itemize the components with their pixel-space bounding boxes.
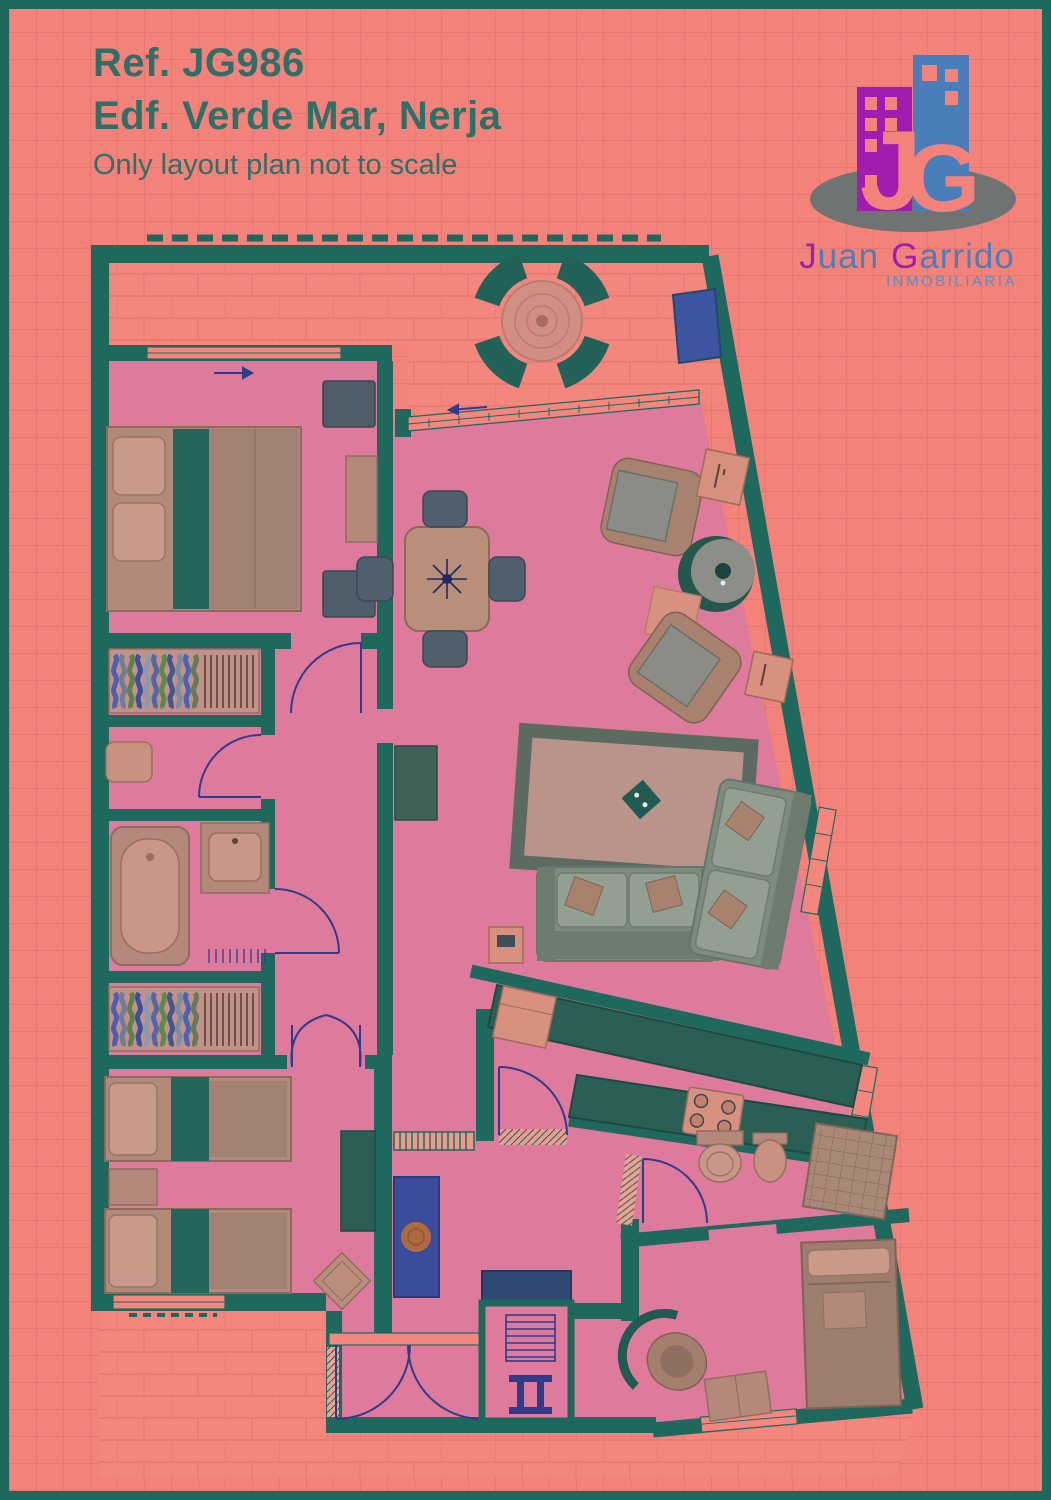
dining-chair: [423, 491, 467, 527]
hall-rug: [394, 1177, 439, 1297]
nightstand: [109, 1169, 157, 1205]
floor-plan: [9, 9, 1051, 1500]
tv-unit: [395, 746, 437, 820]
dresser: [106, 742, 152, 782]
bidet-icon: [753, 1133, 787, 1182]
shoe-rack: [394, 1132, 474, 1150]
side-table: [696, 449, 749, 505]
fridge-icon: [493, 986, 557, 1048]
sideboard: [704, 1371, 771, 1421]
toilet-icon: [697, 1131, 743, 1182]
dresser: [346, 456, 377, 542]
entry-threshold: [329, 1333, 493, 1345]
twin-bed: [105, 1077, 291, 1161]
side-table: [489, 927, 523, 963]
dining-chair: [357, 557, 393, 601]
dressing-room: [106, 742, 152, 782]
elevator-core: [482, 1271, 571, 1421]
flyer-page: Ref. JG986 Edf. Verde Mar, Nerja Only la…: [0, 0, 1051, 1500]
twin-bed: [105, 1209, 291, 1293]
shower-icon: [803, 1123, 897, 1219]
nightstand: [323, 381, 375, 427]
dining-chair: [489, 557, 525, 601]
wardrobe-1: [109, 649, 259, 713]
dresser: [341, 1131, 375, 1231]
single-bed: [801, 1239, 901, 1408]
side-table: [745, 651, 793, 702]
wardrobe-2: [109, 987, 259, 1051]
bedroom1-window: [147, 347, 341, 359]
armchair: [598, 455, 706, 558]
dining-chair: [423, 631, 467, 667]
terrace-bench: [673, 289, 721, 363]
